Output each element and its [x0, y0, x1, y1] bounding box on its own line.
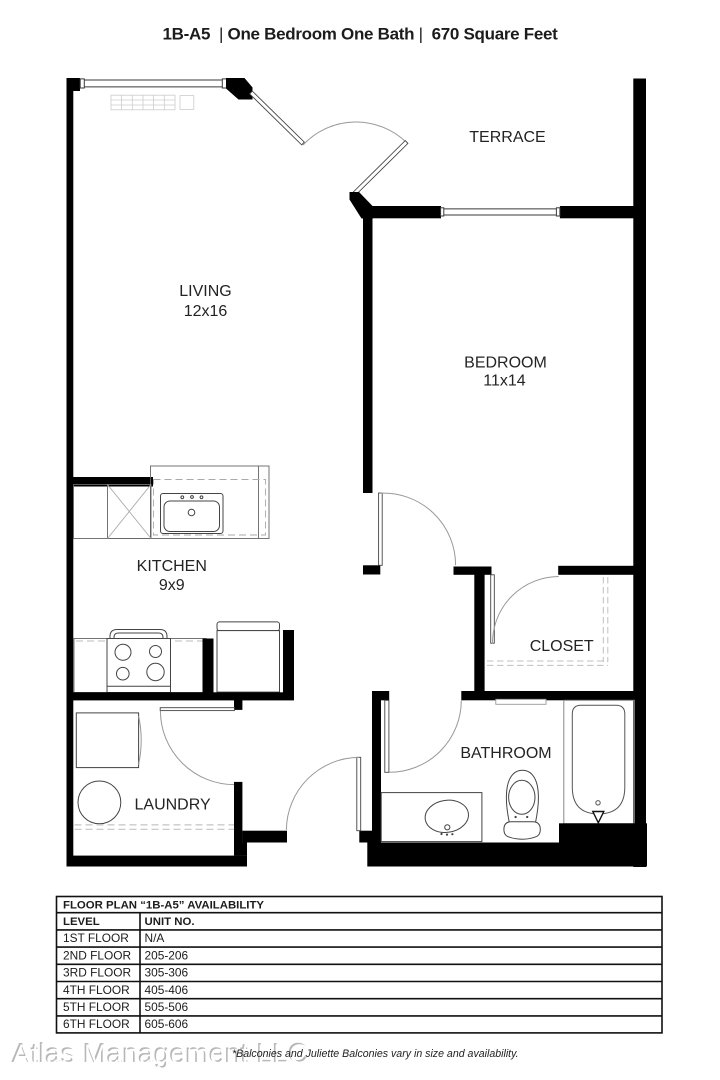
svg-text:3RD FLOOR: 3RD FLOOR [63, 966, 131, 980]
svg-text:12x16: 12x16 [184, 303, 228, 320]
svg-text:405-406: 405-406 [145, 983, 189, 997]
svg-text:LAUNDRY: LAUNDRY [135, 797, 212, 814]
svg-text:605-606: 605-606 [145, 1017, 189, 1031]
svg-text:N/A: N/A [145, 931, 165, 945]
svg-text:1ST FLOOR: 1ST FLOOR [63, 931, 129, 945]
svg-text:*Balconies and Juliette Balcon: *Balconies and Juliette Balconies vary i… [232, 1048, 519, 1060]
svg-text:BEDROOM: BEDROOM [464, 355, 547, 372]
svg-text:BATHROOM: BATHROOM [460, 745, 551, 762]
svg-text:CLOSET: CLOSET [530, 638, 594, 655]
svg-text:FLOOR PLAN “1B-A5” AVAILABILIT: FLOOR PLAN “1B-A5” AVAILABILITY [63, 900, 264, 912]
svg-text:LEVEL: LEVEL [63, 916, 100, 928]
svg-text:5TH FLOOR: 5TH FLOOR [63, 1000, 130, 1014]
svg-text:KITCHEN: KITCHEN [137, 558, 207, 575]
svg-text:6TH FLOOR: 6TH FLOOR [63, 1017, 130, 1031]
svg-text:11x14: 11x14 [483, 373, 526, 390]
svg-text:LIVING: LIVING [179, 283, 231, 300]
svg-text:UNIT NO.: UNIT NO. [145, 916, 195, 928]
svg-text:205-206: 205-206 [145, 948, 189, 962]
svg-text:505-506: 505-506 [145, 1000, 189, 1014]
svg-text:4TH FLOOR: 4TH FLOOR [63, 983, 130, 997]
svg-text:9x9: 9x9 [159, 577, 185, 594]
svg-text:TERRACE: TERRACE [469, 129, 545, 146]
svg-text:2ND FLOOR: 2ND FLOOR [63, 948, 131, 962]
svg-text:1B-A5 | One Bedroom One Bath: 1B-A5 | One Bedroom One Bath | 670 Squar… [162, 25, 558, 44]
svg-text:305-306: 305-306 [145, 966, 189, 980]
